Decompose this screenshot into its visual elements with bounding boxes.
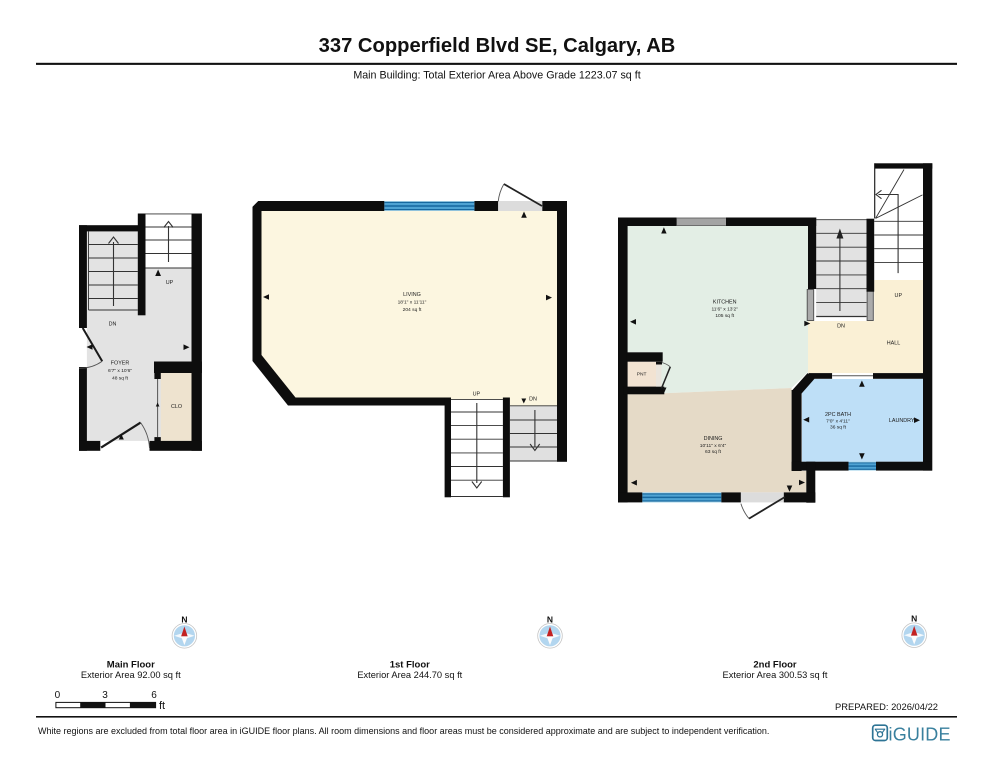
- svg-text:DN: DN: [109, 322, 117, 328]
- svg-text:11'6" x 13'2": 11'6" x 13'2": [711, 307, 738, 313]
- svg-text:6: 6: [151, 690, 157, 701]
- svg-text:10'11" x 6'4": 10'11" x 6'4": [700, 443, 727, 449]
- svg-text:36 sq ft: 36 sq ft: [830, 425, 847, 431]
- svg-text:48 sq ft: 48 sq ft: [112, 376, 129, 382]
- svg-text:Main Floor: Main Floor: [107, 659, 155, 670]
- svg-text:204 sq ft: 204 sq ft: [403, 307, 422, 313]
- svg-text:White regions are excluded fro: White regions are excluded from total fl…: [38, 726, 769, 736]
- svg-text:7'0" x 4'11": 7'0" x 4'11": [826, 419, 850, 425]
- svg-text:2nd Floor: 2nd Floor: [753, 659, 797, 670]
- svg-text:N: N: [181, 614, 187, 624]
- svg-text:LIVING: LIVING: [403, 292, 421, 298]
- svg-text:Exterior Area 92.00 sq ft: Exterior Area 92.00 sq ft: [81, 670, 181, 680]
- svg-text:6'7" x 10'6": 6'7" x 10'6": [108, 368, 132, 374]
- svg-text:Exterior Area 300.53 sq ft: Exterior Area 300.53 sq ft: [723, 670, 828, 680]
- svg-text:ft: ft: [159, 700, 165, 712]
- svg-text:N: N: [547, 614, 553, 624]
- svg-text:HALL: HALL: [887, 341, 901, 347]
- svg-text:iGUIDE: iGUIDE: [889, 724, 951, 744]
- svg-text:PNT: PNT: [637, 372, 647, 378]
- svg-text:1st Floor: 1st Floor: [390, 659, 430, 670]
- svg-text:18'1" x 11'11": 18'1" x 11'11": [398, 300, 427, 306]
- svg-text:3: 3: [102, 690, 108, 701]
- svg-text:PREPARED: 2026/04/22: PREPARED: 2026/04/22: [835, 701, 938, 712]
- svg-text:UP: UP: [473, 392, 481, 398]
- svg-text:Exterior Area 244.70 sq ft: Exterior Area 244.70 sq ft: [357, 670, 462, 680]
- svg-text:LAUNDRY: LAUNDRY: [889, 418, 915, 424]
- svg-text:UP: UP: [895, 293, 903, 299]
- svg-text:Main Building: Total Exterior: Main Building: Total Exterior Area Above…: [353, 70, 640, 82]
- svg-text:DINING: DINING: [704, 436, 723, 442]
- svg-text:KITCHEN: KITCHEN: [713, 300, 737, 306]
- svg-text:63 sq ft: 63 sq ft: [705, 449, 722, 455]
- svg-text:FOYER: FOYER: [111, 361, 130, 367]
- svg-text:DN: DN: [529, 397, 537, 403]
- svg-text:DN: DN: [837, 324, 845, 330]
- svg-text:2PC BATH: 2PC BATH: [825, 412, 851, 418]
- svg-text:337 Copperfield Blvd SE, Calga: 337 Copperfield Blvd SE, Calgary, AB: [319, 35, 676, 57]
- svg-text:105 sq ft: 105 sq ft: [715, 313, 734, 319]
- svg-text:UP: UP: [166, 280, 174, 286]
- svg-text:N: N: [911, 614, 917, 624]
- svg-text:CLO: CLO: [171, 404, 182, 410]
- svg-text:0: 0: [55, 690, 61, 701]
